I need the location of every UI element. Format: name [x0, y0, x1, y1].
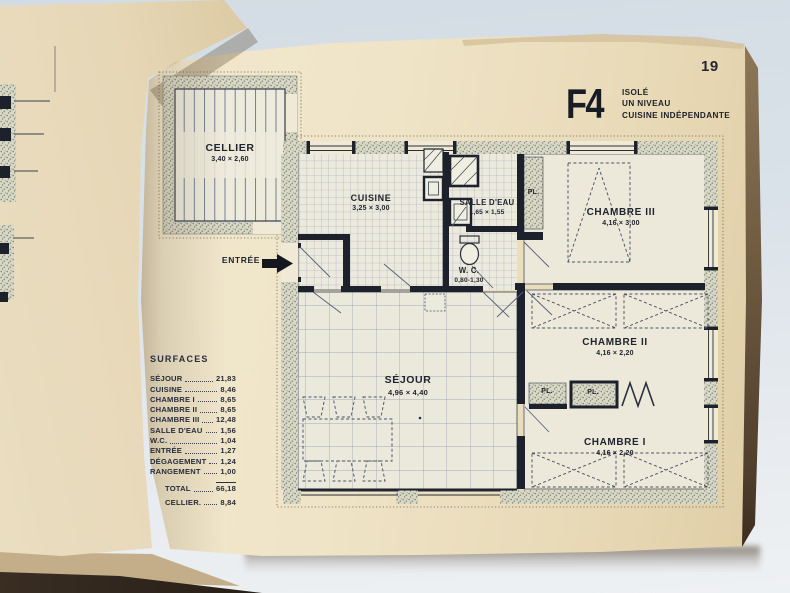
surfaces-row-degagement: DÉGAGEMENT1,24	[150, 455, 236, 465]
left-page-plan-fragment	[0, 46, 55, 302]
room-label-chambre2: CHAMBRE II 4,16 × 2,20	[582, 337, 647, 357]
surfaces-total-row: TOTAL66,18	[150, 483, 236, 493]
title-line-2: UN NIVEAU	[622, 98, 730, 109]
plan-title-lines: ISOLÉ UN NIVEAU CUISINE INDÉPENDANTE	[622, 87, 730, 121]
surfaces-table: SURFACES SÉJOUR21,83 CUISINE8,46 CHAMBRE…	[150, 354, 236, 507]
surfaces-row-sejour: SÉJOUR21,83	[150, 373, 236, 383]
closet-label-pl-a: PL.	[541, 388, 553, 395]
plan-title-code: F4	[566, 80, 603, 128]
surfaces-row-salle-eau: SALLE D'EAU1,56	[150, 424, 236, 434]
room-label-chambre1: CHAMBRE I 4,16 × 2,20	[584, 437, 646, 457]
page-number: 19	[701, 58, 719, 75]
room-label-salle-eau: SALLE D'EAU 1,65 × 1,55	[460, 198, 515, 216]
room-label-wc: W. C. 0,80-1,30	[454, 266, 483, 284]
toilet-icon	[461, 244, 479, 265]
room-label-chambre3: CHAMBRE III 4,16 × 3,00	[587, 207, 656, 227]
surfaces-row-cuisine: CUISINE8,46	[150, 383, 236, 393]
surfaces-header: SURFACES	[150, 354, 236, 364]
title-line-1: ISOLÉ	[622, 87, 730, 98]
entree-label: ENTRÉE	[196, 255, 260, 265]
surfaces-row-chambre1: CHAMBRE I8,65	[150, 394, 236, 404]
room-label-cellier: CELLIER 3,40 × 2,60	[205, 142, 254, 163]
surfaces-row-rangement: RANGEMENT1,00	[150, 466, 236, 476]
surfaces-row-chambre2: CHAMBRE II8,65	[150, 404, 236, 414]
surfaces-cellier-row: CELLIER.8,84	[150, 496, 236, 506]
closet-label-pl-b: PL.	[587, 389, 599, 396]
room-label-sejour: SÉJOUR 4,96 × 4,40	[385, 374, 432, 397]
book-photo: 19 F4 ISOLÉ UN NIVEAU CUISINE INDÉPENDAN…	[0, 0, 790, 593]
title-line-3: CUISINE INDÉPENDANTE	[622, 110, 730, 121]
surfaces-row-entree: ENTRÉE1,27	[150, 445, 236, 455]
room-label-cuisine: CUISINE 3,25 × 3,00	[351, 193, 392, 212]
surfaces-row-chambre3: CHAMBRE III12,48	[150, 414, 236, 424]
closet-label-pl-top: PL.	[528, 189, 540, 196]
surfaces-row-wc: W.C.1,04	[150, 435, 236, 445]
